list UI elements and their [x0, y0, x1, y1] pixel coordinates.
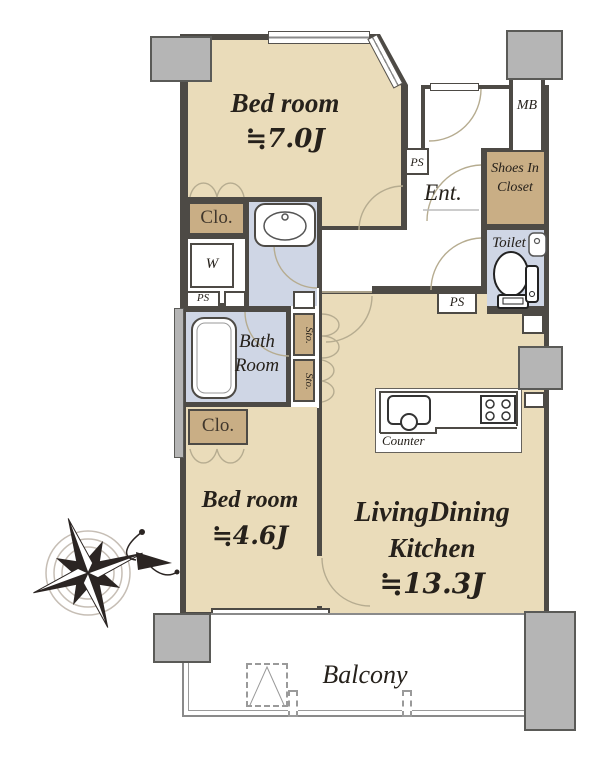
storage1-label: Sto.	[293, 315, 315, 355]
storage2-label: Sto.	[293, 361, 315, 401]
shoes-in-closet-label: Shoes In Closet	[485, 160, 545, 198]
bedroom1-name: Bed room	[185, 88, 385, 119]
washing-machine-label: W	[190, 256, 234, 273]
closet1-label: Clo.	[188, 207, 245, 229]
ps-entrance-label: PS	[405, 155, 429, 170]
entrance-label: Ent.	[408, 180, 478, 206]
bedroom2-door-opening	[317, 556, 322, 606]
counter-label: Counter	[382, 433, 442, 449]
bedroom1-size: ≒7.0J	[185, 124, 385, 154]
balcony-partition-1	[288, 690, 298, 717]
ldk-name-line2: Kitchen	[330, 533, 534, 564]
compass-rose-icon	[34, 519, 180, 628]
bathroom-line1: Bath	[224, 330, 290, 354]
meter-box-corridor	[509, 78, 545, 150]
bathroom-label: Bath Room	[224, 330, 290, 378]
closet1-bottom-wall	[188, 235, 245, 239]
toilet-label: Toilet	[486, 235, 532, 252]
balcony-partition-2	[402, 690, 412, 717]
pillar-bottom-left	[153, 613, 211, 663]
shoes-in-closet-line2: Closet	[485, 179, 545, 198]
closet2-label: Clo.	[188, 415, 248, 437]
ps-washroom-label: PS	[186, 292, 220, 304]
duct-box-toilet	[522, 314, 544, 334]
front-door-leaf	[430, 83, 479, 91]
bathroom-line2: Room	[224, 354, 290, 378]
floor-plan: Bed room ≒7.0J Clo. W PS PS PS MB Ent. S…	[0, 0, 600, 760]
ps-ldk-label: PS	[437, 294, 477, 310]
escape-hatch	[246, 663, 288, 707]
duct-box-kitchen	[524, 392, 545, 408]
hall-ldk-threshold	[322, 291, 372, 293]
pillar-mid-right	[518, 346, 563, 390]
shoes-in-closet-line1: Shoes In	[485, 160, 545, 179]
ldk-size: ≒13.3J	[330, 567, 534, 600]
pillar-top-left	[150, 36, 212, 82]
pillar-bottom-right	[524, 611, 576, 731]
outer-wall-strip-left	[174, 308, 184, 458]
bedroom1-window	[268, 31, 370, 44]
bedroom2-name: Bed room	[170, 487, 330, 514]
ldk-name-line1: LivingDining	[330, 497, 534, 529]
balcony-label: Balcony	[300, 660, 430, 690]
bedroom2-size: ≒4.6J	[170, 521, 330, 550]
duct-box-washroom	[224, 291, 246, 308]
meter-box-label: MB	[509, 98, 545, 114]
pillar-top-right	[506, 30, 563, 80]
storage-top-box	[293, 291, 315, 309]
